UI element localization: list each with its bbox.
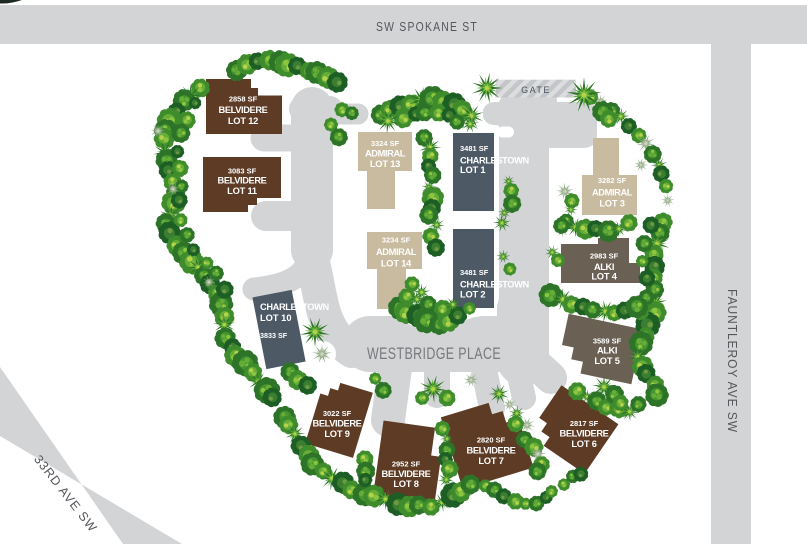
svg-text:LOT 1: LOT 1 [460, 165, 485, 175]
svg-text:2817 SF: 2817 SF [570, 419, 599, 428]
svg-text:LOT 2: LOT 2 [460, 289, 485, 299]
svg-text:2820 SF: 2820 SF [477, 436, 506, 445]
svg-text:LOT 8: LOT 8 [393, 479, 418, 489]
svg-text:LOT 5: LOT 5 [594, 356, 619, 366]
svg-text:2952 SF: 2952 SF [392, 460, 421, 469]
svg-text:CHARLESTOWN: CHARLESTOWN [260, 302, 329, 312]
svg-text:3589 SF: 3589 SF [593, 337, 622, 346]
svg-text:2858 SF: 2858 SF [229, 95, 258, 104]
svg-text:LOT 13: LOT 13 [370, 159, 400, 169]
svg-text:BELVIDERE: BELVIDERE [219, 105, 268, 115]
svg-text:WESTBRIDGE PLACE: WESTBRIDGE PLACE [367, 345, 501, 363]
svg-text:LOT 11: LOT 11 [227, 186, 257, 196]
svg-text:ADMIRAL: ADMIRAL [592, 187, 633, 197]
svg-text:BELVIDERE: BELVIDERE [382, 469, 431, 479]
svg-text:ALKI: ALKI [594, 262, 614, 272]
svg-text:BELVIDERE: BELVIDERE [467, 445, 516, 455]
svg-text:GATE: GATE [521, 85, 551, 95]
svg-text:3022 SF: 3022 SF [323, 409, 352, 418]
svg-text:CHARLESTOWN: CHARLESTOWN [460, 279, 529, 289]
svg-text:3481 SF: 3481 SF [460, 268, 489, 277]
svg-text:LOT 10: LOT 10 [260, 313, 292, 323]
svg-text:ADMIRAL: ADMIRAL [376, 247, 417, 257]
svg-text:ADMIRAL: ADMIRAL [365, 148, 406, 158]
svg-text:LOT 12: LOT 12 [228, 116, 258, 126]
svg-text:LOT 14: LOT 14 [381, 258, 412, 268]
svg-text:LOT 4: LOT 4 [591, 271, 617, 281]
svg-text:BELVIDERE: BELVIDERE [218, 175, 267, 185]
svg-text:ALKI: ALKI [597, 345, 617, 355]
svg-text:3234 SF: 3234 SF [382, 236, 411, 245]
svg-text:LOT 9: LOT 9 [324, 429, 349, 439]
svg-text:3083 SF: 3083 SF [228, 167, 257, 176]
svg-text:BELVIDERE: BELVIDERE [560, 428, 609, 438]
svg-text:3833 SF: 3833 SF [260, 331, 288, 340]
svg-text:CHARLESTOWN: CHARLESTOWN [460, 155, 529, 165]
svg-text:3324 SF: 3324 SF [371, 139, 400, 148]
svg-text:SW SPOKANE ST: SW SPOKANE ST [376, 19, 478, 34]
svg-text:LOT 6: LOT 6 [571, 439, 596, 449]
svg-text:FAUNTLEROY AVE SW: FAUNTLEROY AVE SW [725, 289, 739, 433]
svg-text:3481 SF: 3481 SF [460, 144, 489, 153]
svg-text:BELVIDERE: BELVIDERE [313, 418, 362, 428]
svg-text:LOT 3: LOT 3 [599, 198, 624, 208]
svg-text:LOT 7: LOT 7 [478, 456, 503, 466]
svg-text:2983 SF: 2983 SF [590, 252, 619, 261]
svg-text:3282 SF: 3282 SF [598, 176, 627, 185]
